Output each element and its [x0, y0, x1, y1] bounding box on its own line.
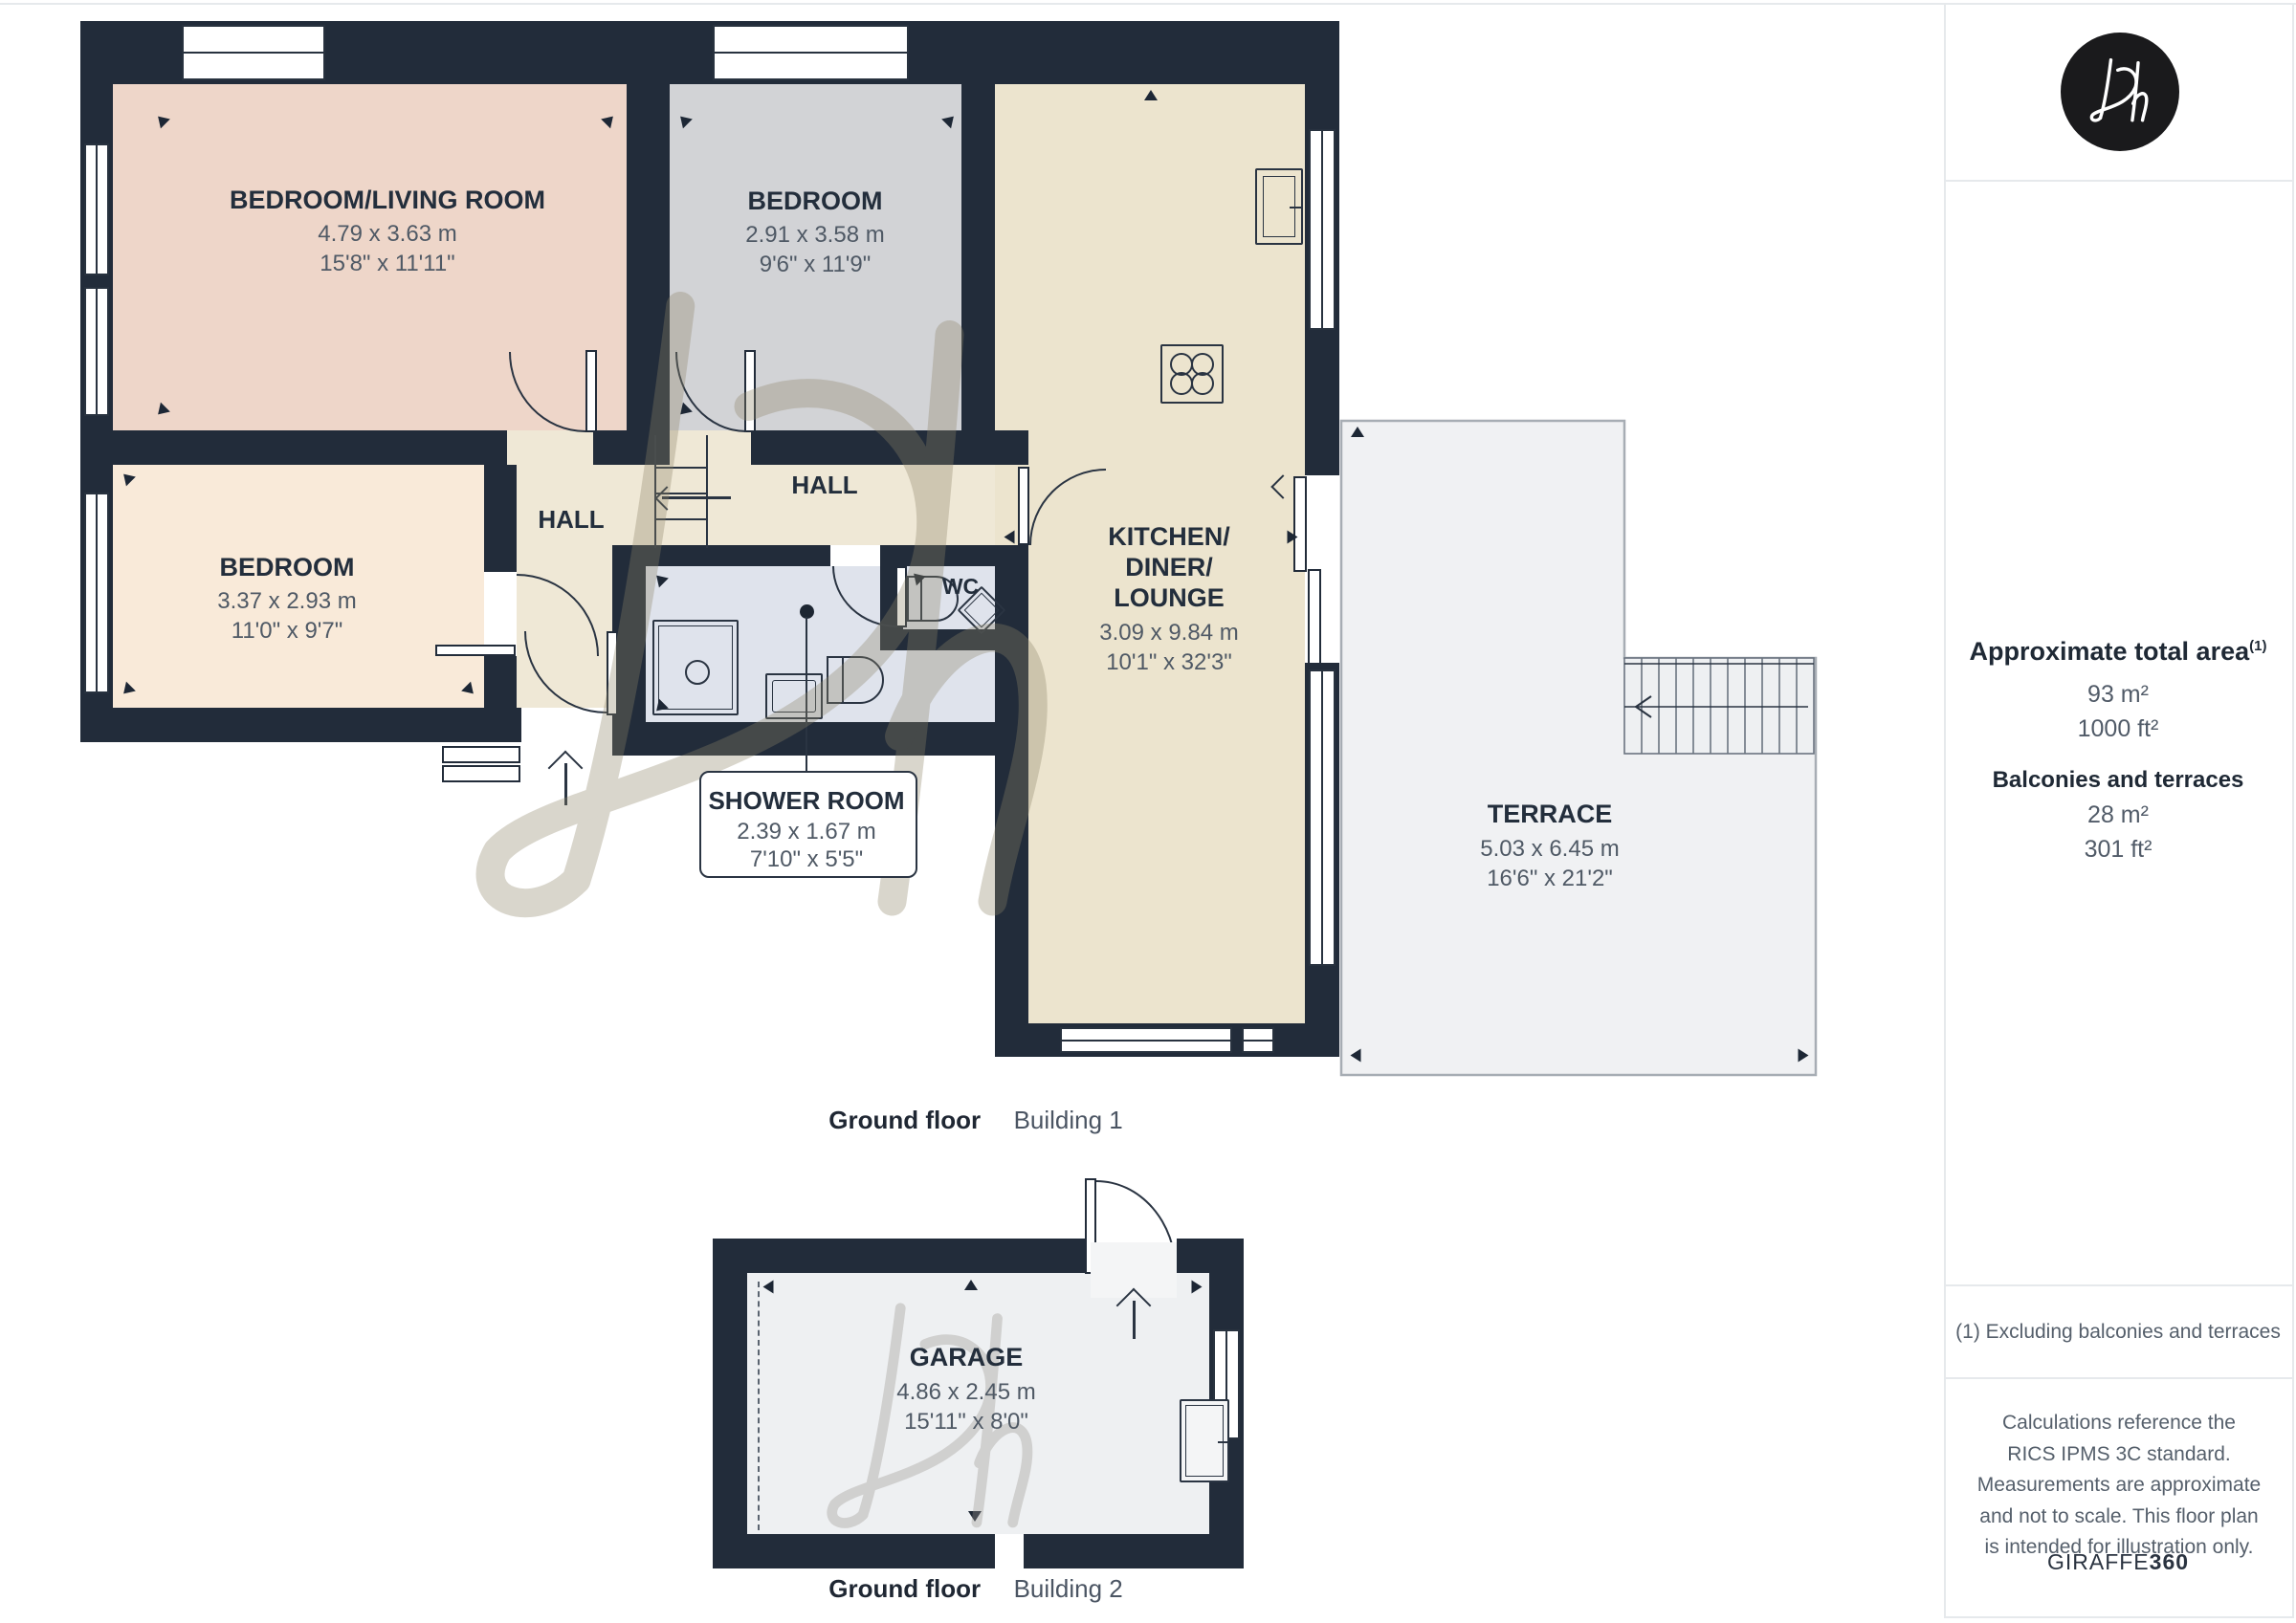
- room-dim-imperial: 7'10" x 5'5": [750, 848, 863, 871]
- room-label: DINER/: [1125, 555, 1213, 581]
- brand-wordmark: GIRAFFE360: [2047, 1551, 2189, 1573]
- window-left-2: [84, 493, 109, 693]
- total-area-m2: 93 m²: [2087, 683, 2149, 707]
- caption-building: Building 1: [1014, 1106, 1123, 1134]
- room-dim-metric: 4.79 x 3.63 m: [318, 223, 456, 246]
- corner-arrow-icon: [1144, 90, 1158, 100]
- room-dim-metric: 5.03 x 6.45 m: [1480, 838, 1619, 861]
- room-dim-imperial: 15'11" x 8'0": [904, 1411, 1028, 1434]
- room-label: TERRACE: [1488, 801, 1613, 827]
- room-label: BEDROOM: [748, 188, 883, 214]
- balconies-ft2: 301 ft²: [2085, 838, 2152, 862]
- garage-appliance: [1180, 1399, 1229, 1482]
- sliding-door-panel-2: [1308, 569, 1321, 665]
- window-kitchen-bottom-2: [1242, 1027, 1274, 1053]
- caption-building1: Ground floor Building 1: [828, 1108, 1123, 1132]
- room-dim-imperial: 11'0" x 9'7": [232, 620, 343, 643]
- room-dim-metric: 2.91 x 3.58 m: [745, 224, 884, 247]
- corner-arrow-icon: [1192, 1281, 1203, 1294]
- sidebar-divider-footnote-bottom: [1944, 1377, 2294, 1379]
- room-label: BEDROOM: [220, 555, 355, 581]
- total-area-ft2: 1000 ft²: [2078, 717, 2159, 741]
- balconies-m2: 28 m²: [2087, 803, 2149, 827]
- terrace-stairs: [1624, 658, 1814, 754]
- footnote-text: (1) Excluding balconies and terraces: [1955, 1322, 2281, 1342]
- brand-logo-icon: [2055, 27, 2185, 157]
- room-label: LOUNGE: [1114, 585, 1225, 611]
- sidebar-divider-bottom: [1944, 1616, 2294, 1618]
- garage-dashed-line: [758, 1282, 760, 1530]
- room-dim-metric: 2.39 x 1.67 m: [737, 821, 875, 844]
- floorplan-page: BEDROOM/LIVING ROOM 4.79 x 3.63 m 15'8" …: [0, 0, 2296, 1623]
- room-dim-imperial: 10'1" x 32'3": [1106, 651, 1232, 674]
- disclaimer-text: Calculations reference the RICS IPMS 3C …: [1976, 1408, 2262, 1564]
- room-label: BEDROOM/LIVING ROOM: [230, 187, 545, 213]
- page-top-border: [0, 3, 2296, 5]
- corner-arrow-icon: [1351, 1049, 1361, 1063]
- window-kitchen-right-1: [1309, 129, 1336, 330]
- room-dim-imperial: 9'6" x 11'9": [760, 253, 872, 276]
- terrace-outline: [1339, 419, 1820, 1079]
- corner-arrow-icon: [1288, 531, 1298, 544]
- total-area-title: Approximate total area(1): [1970, 639, 2267, 665]
- room-label: HALL: [791, 472, 857, 497]
- room-label: GARAGE: [910, 1345, 1024, 1371]
- garage-wall-top-left: [713, 1239, 1091, 1273]
- sidebar-right-border: [2292, 3, 2294, 1616]
- window-kitchen-right-2: [1309, 669, 1336, 966]
- caption-floor: Ground floor: [828, 1106, 981, 1134]
- corner-arrow-icon: [763, 1281, 774, 1294]
- caption-floor: Ground floor: [828, 1574, 981, 1603]
- sliding-door-panel-1: [1293, 476, 1307, 572]
- room-label: SHOWER ROOM: [708, 788, 904, 813]
- kitchen-sink-unit: [1255, 168, 1303, 245]
- window-left-1a: [84, 143, 109, 275]
- footnote-marker: (1): [2249, 638, 2266, 654]
- room-dim-imperial: 15'8" x 11'11": [320, 252, 454, 275]
- window-top-1: [182, 25, 325, 80]
- window-top-2: [713, 25, 909, 80]
- corner-arrow-icon: [1799, 1049, 1809, 1063]
- room-label: WC: [942, 576, 979, 598]
- garage-wall-left: [713, 1239, 747, 1568]
- room-dim-metric: 3.09 x 9.84 m: [1099, 622, 1238, 645]
- room-label: KITCHEN/: [1108, 524, 1230, 550]
- brand-bold: 360: [2150, 1549, 2189, 1574]
- window-left-1b: [84, 287, 109, 416]
- sidebar-left-border: [1944, 3, 1946, 1616]
- sidebar-divider-logo: [1944, 180, 2294, 182]
- garage-entrance-arrow-stem: [1133, 1301, 1136, 1339]
- room-dim-metric: 3.37 x 2.93 m: [217, 590, 356, 613]
- caption-building: Building 2: [1014, 1574, 1123, 1603]
- room-dim-imperial: 16'6" x 21'2": [1487, 867, 1613, 890]
- corner-arrow-icon: [1351, 427, 1364, 437]
- room-label: HALL: [538, 507, 604, 532]
- kitchen-hob: [1160, 344, 1224, 404]
- caption-building2: Ground floor Building 2: [828, 1576, 1123, 1601]
- window-kitchen-bottom-1: [1060, 1027, 1232, 1053]
- balconies-title: Balconies and terraces: [1993, 769, 2244, 792]
- sidebar-divider-footnote-top: [1944, 1284, 2294, 1286]
- room-dim-metric: 4.86 x 2.45 m: [896, 1381, 1035, 1404]
- brand-regular: GIRAFFE: [2047, 1549, 2150, 1574]
